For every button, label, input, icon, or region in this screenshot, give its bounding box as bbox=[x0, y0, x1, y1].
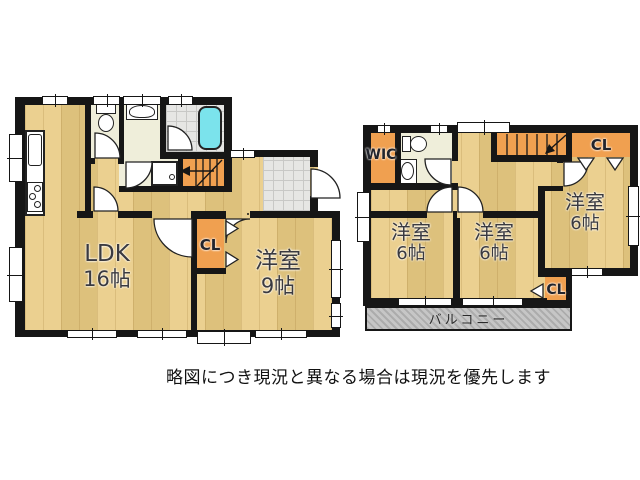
toilet-bowl-2f bbox=[410, 136, 427, 152]
wall bbox=[310, 157, 318, 167]
disclaimer-note: 略図につき現況と異なる場合は現況を優先します bbox=[166, 363, 551, 388]
window bbox=[168, 96, 193, 105]
western9-size: 9帖 bbox=[228, 274, 328, 298]
wall bbox=[119, 97, 124, 158]
wall bbox=[160, 152, 232, 159]
ldk-name: LDK bbox=[84, 241, 130, 267]
window bbox=[462, 298, 523, 306]
western9-name: 洋室 bbox=[255, 248, 301, 274]
wall bbox=[250, 211, 340, 218]
window bbox=[42, 96, 68, 105]
wall bbox=[483, 211, 545, 218]
window bbox=[255, 330, 307, 338]
stove-burner bbox=[34, 201, 41, 208]
wall bbox=[540, 271, 571, 277]
western6-left-name: 洋室 bbox=[391, 220, 431, 244]
wall bbox=[557, 155, 563, 163]
mask bbox=[232, 92, 347, 152]
wall bbox=[538, 191, 545, 277]
western6-right-name: 洋室 bbox=[565, 190, 605, 214]
window bbox=[571, 268, 603, 276]
window bbox=[457, 122, 510, 133]
window bbox=[93, 96, 120, 105]
mask bbox=[572, 276, 640, 302]
stairs-1f bbox=[183, 159, 224, 186]
western6-right-size: 6帖 bbox=[545, 214, 625, 235]
western6-right-label: 洋室 6帖 bbox=[545, 191, 625, 235]
wall bbox=[491, 133, 497, 157]
wall bbox=[118, 211, 152, 218]
wall bbox=[452, 133, 458, 161]
window bbox=[398, 298, 452, 306]
closet-2f-bottom-label: CL bbox=[542, 282, 570, 298]
stove-burner bbox=[34, 185, 41, 192]
stove-burner bbox=[29, 193, 36, 200]
wall bbox=[118, 158, 124, 164]
wall bbox=[191, 268, 226, 274]
washbasin-bowl-2f bbox=[401, 162, 414, 180]
wall bbox=[363, 211, 427, 218]
bathtub bbox=[198, 106, 222, 150]
window bbox=[123, 96, 161, 105]
ldk-size: 16帖 bbox=[52, 267, 162, 291]
balcony: バルコニー bbox=[365, 306, 572, 331]
western6-mid-label: 洋室 6帖 bbox=[452, 221, 536, 265]
window bbox=[137, 330, 187, 338]
mask bbox=[318, 152, 347, 212]
wall bbox=[453, 211, 457, 218]
kitchen-sink bbox=[28, 134, 42, 166]
window bbox=[331, 240, 341, 298]
western6-mid-size: 6帖 bbox=[452, 244, 536, 265]
wall bbox=[178, 157, 183, 190]
sliding-window bbox=[197, 331, 251, 344]
wall bbox=[85, 158, 95, 164]
western6-left-label: 洋室 6帖 bbox=[369, 221, 453, 265]
wall bbox=[363, 183, 458, 190]
western9-label: 洋室 9帖 bbox=[228, 248, 328, 299]
entrance-tile bbox=[263, 157, 310, 211]
window bbox=[9, 134, 23, 182]
wall bbox=[224, 97, 232, 192]
window bbox=[331, 303, 341, 328]
toilet-bowl-1f bbox=[98, 114, 114, 132]
wall bbox=[566, 133, 572, 157]
western6-mid-name: 洋室 bbox=[474, 220, 514, 244]
floor-plan-canvas: バルコニー bbox=[0, 0, 640, 480]
ldk-label: LDK 16帖 bbox=[52, 241, 162, 292]
closet-2f-top-label: CL bbox=[584, 136, 618, 154]
window bbox=[9, 247, 23, 302]
balcony-label: バルコニー bbox=[429, 309, 509, 328]
window bbox=[430, 125, 448, 133]
washer-faucet bbox=[169, 174, 175, 180]
stairs-2f bbox=[497, 133, 566, 157]
washing-machine bbox=[151, 161, 178, 186]
wall bbox=[160, 97, 166, 157]
window bbox=[628, 186, 639, 246]
wall bbox=[191, 211, 197, 337]
wic-label: WIC bbox=[361, 147, 401, 163]
window bbox=[377, 125, 391, 133]
wall bbox=[119, 186, 232, 192]
window bbox=[230, 150, 255, 158]
western6-left-size: 6帖 bbox=[369, 244, 453, 265]
closet-1f-label: CL bbox=[194, 236, 226, 254]
window bbox=[67, 330, 117, 338]
